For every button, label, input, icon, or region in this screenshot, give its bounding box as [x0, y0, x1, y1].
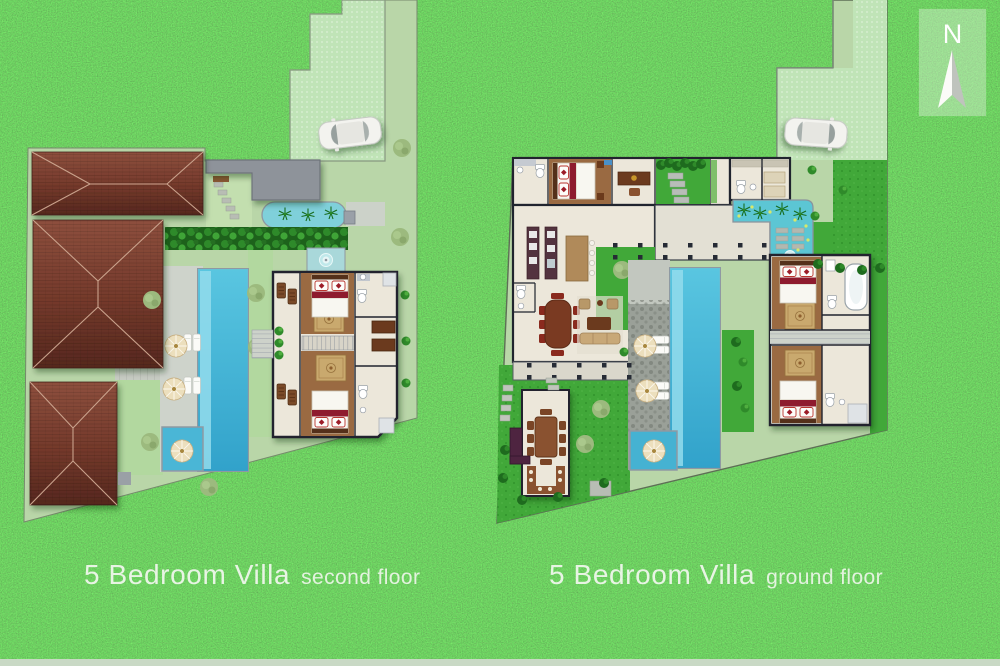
- side-table: [597, 193, 604, 200]
- bathtub-basin: [849, 270, 863, 304]
- bed: [780, 381, 816, 423]
- toilet: [826, 394, 835, 407]
- tree: [141, 433, 159, 451]
- wooden-lounger: [277, 384, 286, 399]
- wooden-lounger: [288, 289, 297, 304]
- toilet: [359, 386, 368, 399]
- lawn: [117, 380, 163, 475]
- roof-middle: [33, 220, 163, 368]
- plan-title: 5 Bedroom Villa: [84, 559, 290, 591]
- bed: [553, 163, 595, 199]
- tree: [391, 228, 409, 246]
- bottom-strip: [0, 659, 1000, 666]
- toilet: [828, 296, 837, 309]
- desk-lamp: [631, 175, 637, 181]
- sink: [360, 407, 366, 413]
- swimming-pool: [198, 269, 248, 471]
- shower: [383, 273, 396, 286]
- pebble-deck: [628, 300, 670, 435]
- plant: [275, 351, 284, 360]
- umbrella-icon: [171, 440, 193, 462]
- water-feature: [262, 202, 355, 228]
- second-floor-label: 5 Bedroom Villa second floor: [84, 559, 420, 591]
- rug: [316, 355, 346, 381]
- sink: [518, 303, 524, 309]
- sink: [360, 274, 366, 280]
- sun-lounger: [193, 377, 201, 394]
- walkway: [513, 362, 640, 380]
- roof-south: [30, 382, 117, 505]
- stairs: [302, 336, 354, 350]
- plant: [275, 339, 284, 348]
- sink: [517, 167, 523, 173]
- kitchen-island: [566, 236, 588, 281]
- tree: [247, 284, 265, 302]
- bush: [402, 337, 411, 346]
- bench: [604, 160, 612, 165]
- toilet: [358, 290, 367, 303]
- compass: N: [919, 9, 986, 116]
- tree: [393, 139, 411, 157]
- umbrella-icon: [165, 335, 187, 357]
- rug: [785, 350, 815, 376]
- bed: [312, 391, 348, 433]
- sink: [826, 260, 835, 271]
- terrace-steps: [770, 331, 870, 344]
- vanity: [514, 159, 536, 166]
- plan-subtitle: ground floor: [766, 566, 883, 590]
- wooden-lounger: [288, 390, 297, 405]
- bench: [213, 176, 229, 182]
- entry-steps: [252, 330, 273, 358]
- umbrella-icon: [163, 378, 185, 400]
- wardrobe: [372, 321, 395, 333]
- hedge: [165, 227, 348, 250]
- wooden-lounger: [277, 283, 286, 298]
- chair: [629, 188, 640, 196]
- plan-subtitle: second floor: [301, 566, 420, 590]
- fountain-pond: [307, 248, 345, 273]
- bush: [401, 291, 410, 300]
- plant: [275, 327, 284, 336]
- bed: [312, 275, 348, 317]
- umbrella-icon: [636, 380, 658, 402]
- umbrella-icon: [634, 335, 656, 357]
- bedroom-wing: [770, 255, 870, 425]
- floorplan-canvas: N 5 Bedroom Villa second floor 5 Bedroom…: [0, 0, 1000, 666]
- tree: [143, 291, 161, 309]
- shower: [379, 418, 394, 433]
- wardrobe: [372, 339, 395, 351]
- bar-counter: [510, 456, 530, 464]
- pool-deck: [628, 260, 670, 304]
- wardrobe: [764, 186, 785, 197]
- shower: [848, 404, 867, 423]
- rug: [785, 303, 815, 329]
- tree: [200, 478, 218, 496]
- ground-floor-label: 5 Bedroom Villa ground floor: [549, 559, 883, 591]
- living-set: [577, 296, 629, 357]
- compass-n-label: N: [943, 19, 963, 49]
- entry-garden: [656, 158, 710, 204]
- bush: [402, 379, 411, 388]
- bed: [780, 261, 816, 303]
- sun-lounger: [193, 334, 201, 351]
- side-table: [597, 161, 604, 168]
- toilet: [737, 181, 746, 194]
- sink: [750, 184, 756, 190]
- sink: [839, 399, 845, 405]
- toilet: [517, 286, 526, 299]
- utility-pad: [118, 472, 131, 485]
- plan-title: 5 Bedroom Villa: [549, 559, 755, 591]
- wardrobe: [764, 172, 785, 183]
- umbrella-icon: [643, 440, 665, 462]
- bedroom-block: [273, 272, 397, 437]
- toilet: [536, 165, 545, 178]
- roof-north: [32, 152, 203, 215]
